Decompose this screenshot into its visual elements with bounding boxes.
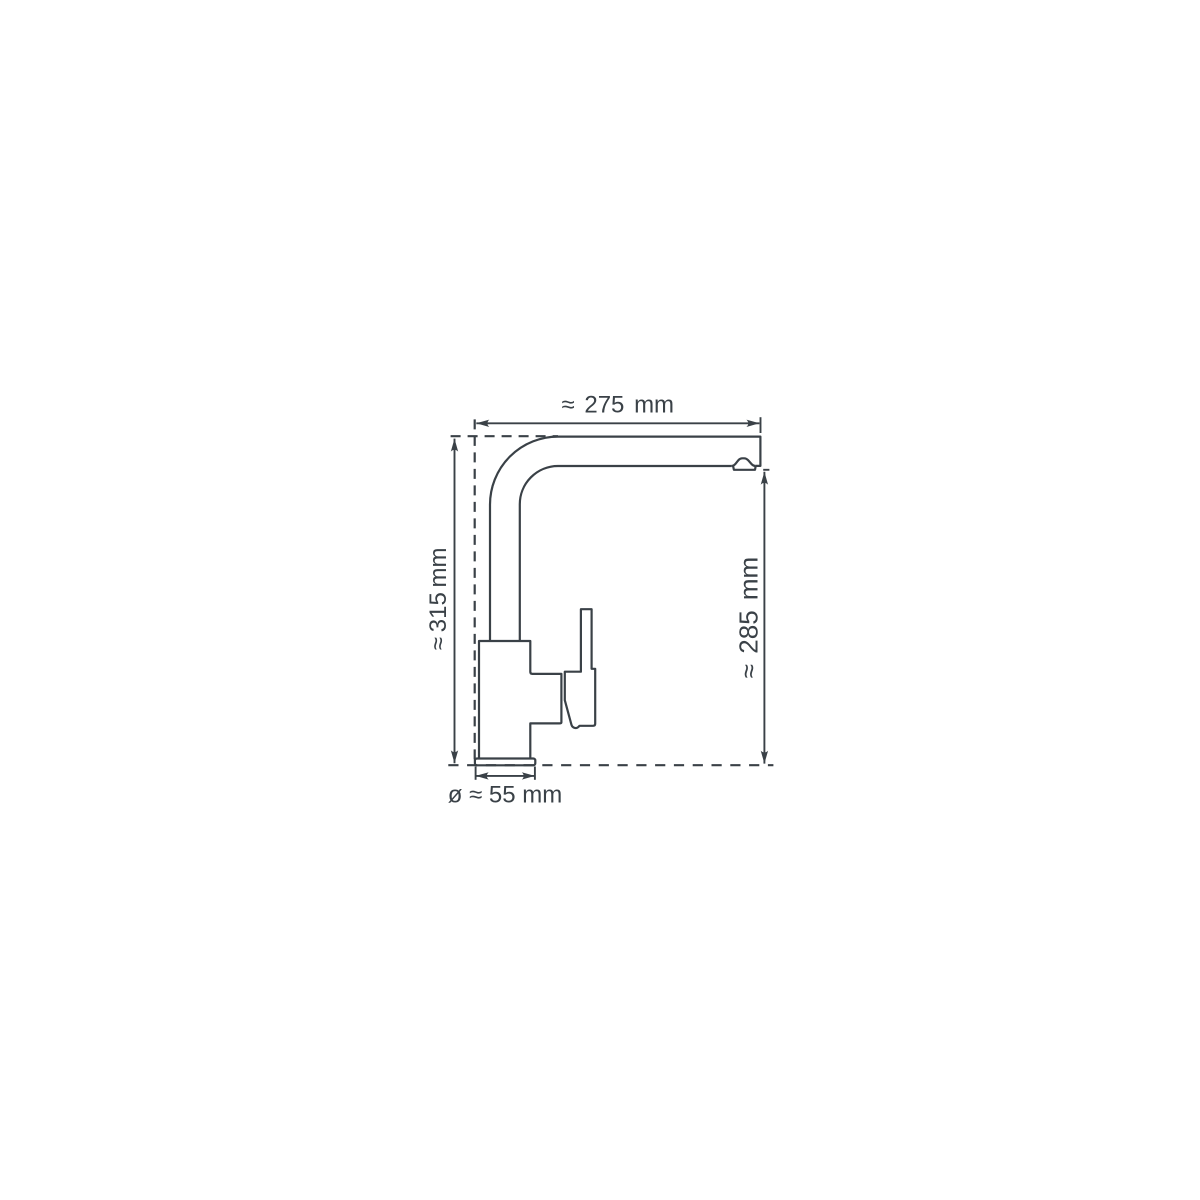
svg-text:ø ≈ 55 mm: ø ≈ 55 mm	[448, 782, 563, 809]
svg-text:≈ 315 mm: ≈ 315 mm	[425, 548, 452, 651]
svg-text:≈ 275 mm: ≈ 275 mm	[562, 391, 675, 418]
svg-text:≈ 285 mm: ≈ 285 mm	[733, 557, 763, 678]
